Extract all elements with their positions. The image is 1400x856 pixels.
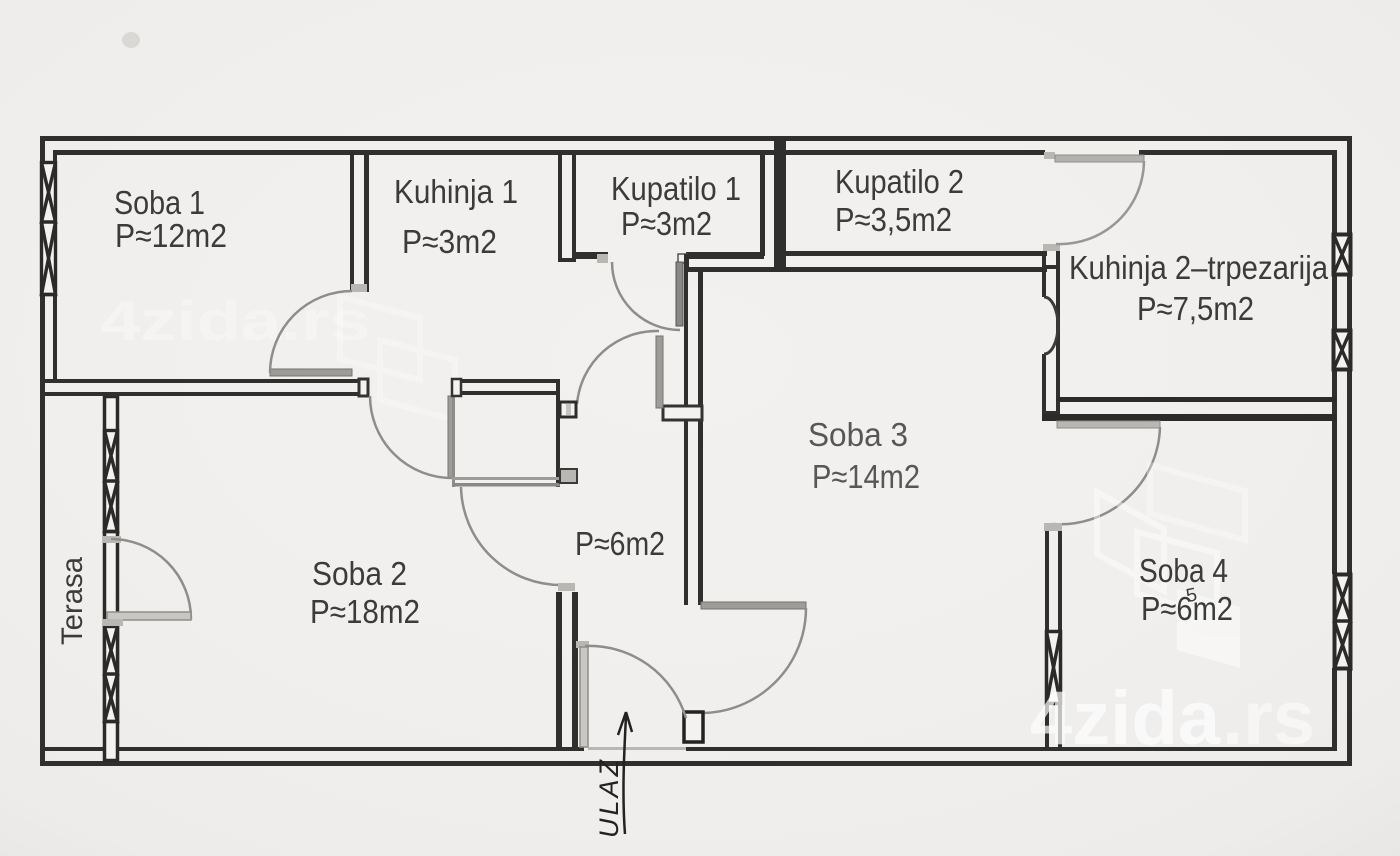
svg-text:P≈3,5m2: P≈3,5m2 xyxy=(835,201,952,238)
svg-text:4zida.rs: 4zida.rs xyxy=(100,289,370,352)
svg-text:Soba 3: Soba 3 xyxy=(808,416,908,453)
svg-text:.rs: .rs xyxy=(1222,676,1315,761)
svg-text:Soba 4: Soba 4 xyxy=(1139,552,1228,589)
svg-text:P≈6m2: P≈6m2 xyxy=(575,525,665,562)
svg-text:P≈3m2: P≈3m2 xyxy=(402,223,497,260)
svg-text:P≈18m2: P≈18m2 xyxy=(310,593,420,630)
svg-text:Kuhinja 1: Kuhinja 1 xyxy=(394,173,518,210)
svg-text:4zida: 4zida xyxy=(1030,676,1221,761)
svg-text:Terasa: Terasa xyxy=(56,557,89,645)
svg-text:Soba 2: Soba 2 xyxy=(312,555,407,592)
svg-text:ULAZ: ULAZ xyxy=(594,757,624,838)
svg-text:P≈12m2: P≈12m2 xyxy=(115,217,227,254)
svg-text:P≈3m2: P≈3m2 xyxy=(621,205,712,242)
svg-text:Kuhinja 2–trpezarija: Kuhinja 2–trpezarija xyxy=(1069,249,1329,286)
svg-text:P≈7,5m2: P≈7,5m2 xyxy=(1137,290,1254,327)
svg-text:Kupatilo 1: Kupatilo 1 xyxy=(611,170,741,207)
svg-text:Kupatilo 2: Kupatilo 2 xyxy=(835,163,964,200)
svg-text:P≈14m2: P≈14m2 xyxy=(812,458,920,495)
svg-text:Soba 1: Soba 1 xyxy=(114,184,205,221)
